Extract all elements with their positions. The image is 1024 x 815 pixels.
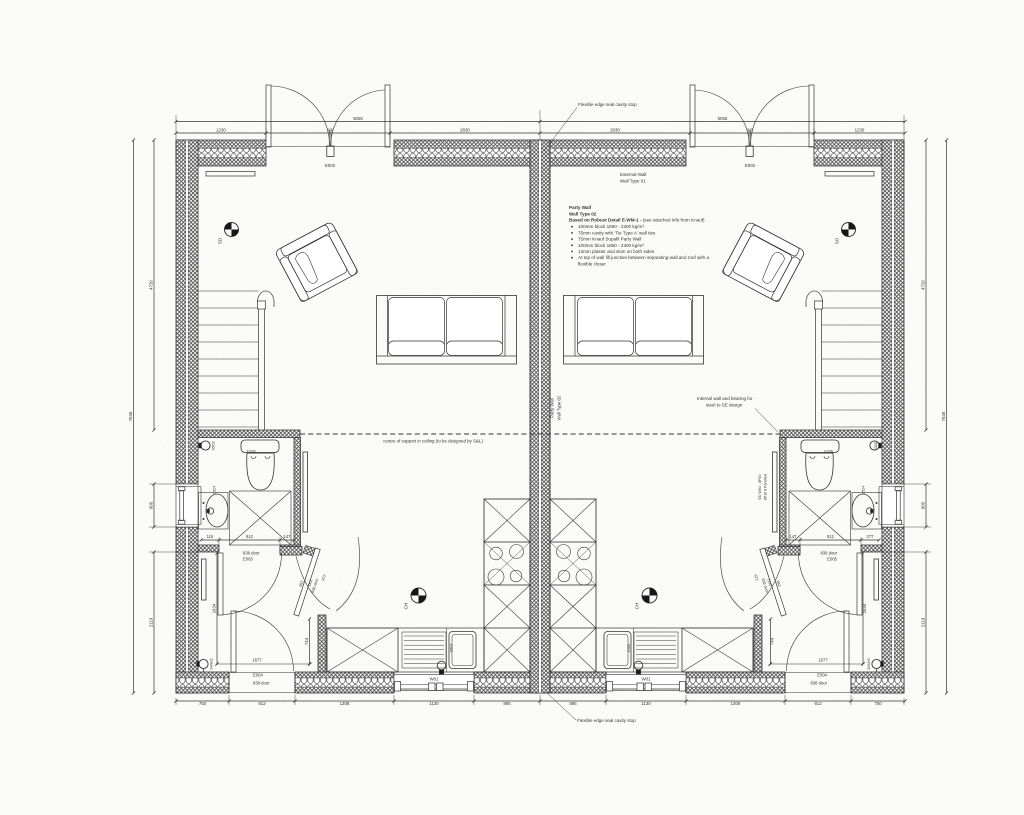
svg-text:W01: W01 bbox=[641, 677, 651, 682]
svg-text:2830: 2830 bbox=[610, 127, 620, 132]
svg-text:1230: 1230 bbox=[216, 127, 226, 132]
svg-text:SD: SD bbox=[835, 237, 840, 244]
svg-text:744: 744 bbox=[304, 637, 309, 645]
svg-text:13mm plaster and skim on both: 13mm plaster and skim on both sides bbox=[578, 249, 655, 254]
svg-text:277: 277 bbox=[867, 534, 875, 539]
svg-text:F336: F336 bbox=[824, 450, 833, 454]
svg-text:912: 912 bbox=[814, 701, 822, 706]
svg-text:4720: 4720 bbox=[920, 280, 925, 290]
svg-text:147: 147 bbox=[790, 534, 798, 539]
svg-text:838 door: 838 door bbox=[253, 681, 270, 686]
svg-text:centre of support in ceiling (: centre of support in ceiling (to be desi… bbox=[383, 439, 483, 444]
svg-text:1130: 1130 bbox=[429, 701, 439, 706]
svg-text:147: 147 bbox=[284, 534, 292, 539]
svg-text:895: 895 bbox=[503, 701, 511, 706]
svg-text:steel to SE design: steel to SE design bbox=[706, 403, 743, 408]
svg-text:1634: 1634 bbox=[211, 603, 216, 613]
svg-text:750: 750 bbox=[199, 701, 207, 706]
svg-text:975: 975 bbox=[327, 128, 333, 132]
svg-text:5055: 5055 bbox=[718, 116, 728, 121]
svg-text:1524: 1524 bbox=[213, 486, 217, 494]
svg-text:Flexible edge seal cavity stop: Flexible edge seal cavity stop bbox=[577, 718, 636, 723]
svg-text:600: 600 bbox=[920, 501, 925, 509]
svg-text:75mm cavity with 'Tie Type A': 75mm cavity with 'Tie Type A' wall ties bbox=[578, 230, 656, 235]
svg-text:ED W04 - 8P10: ED W04 - 8P10 bbox=[758, 475, 762, 500]
svg-text:1308: 1308 bbox=[731, 701, 741, 706]
svg-text:1130: 1130 bbox=[641, 701, 651, 706]
svg-text:600: 600 bbox=[148, 501, 153, 509]
svg-text:975: 975 bbox=[747, 128, 753, 132]
svg-text:4720: 4720 bbox=[148, 280, 153, 290]
svg-text:838 door: 838 door bbox=[820, 551, 837, 556]
svg-text:E004: E004 bbox=[817, 673, 827, 678]
svg-text:2119: 2119 bbox=[148, 617, 153, 627]
svg-text:5055: 5055 bbox=[353, 116, 363, 121]
svg-text:Party Wall: Party Wall bbox=[550, 398, 555, 417]
svg-text:7635: 7635 bbox=[941, 411, 946, 421]
svg-text:75mm Knauf Supafil Party Wall: 75mm Knauf Supafil Party Wall bbox=[578, 237, 641, 242]
svg-text:CH: CH bbox=[404, 603, 409, 610]
svg-text:Internal wall and bearing for: Internal wall and bearing for bbox=[697, 396, 753, 401]
svg-text:S503: S503 bbox=[212, 442, 216, 451]
svg-text:E004: E004 bbox=[253, 673, 263, 678]
svg-text:SV902: SV902 bbox=[210, 658, 214, 669]
svg-text:1230: 1230 bbox=[855, 127, 865, 132]
svg-text:Party Wall: Party Wall bbox=[569, 205, 591, 210]
svg-text:912: 912 bbox=[246, 534, 254, 539]
svg-text:W01: W01 bbox=[429, 677, 439, 682]
svg-text:Wall Type 02: Wall Type 02 bbox=[557, 395, 562, 420]
svg-text:895: 895 bbox=[569, 701, 577, 706]
svg-text:E005: E005 bbox=[827, 557, 837, 562]
svg-text:912: 912 bbox=[827, 534, 835, 539]
svg-text:flexible closer: flexible closer bbox=[578, 261, 606, 266]
svg-text:Flexible edge seal cavity stop: Flexible edge seal cavity stop bbox=[578, 102, 637, 107]
svg-text:External Wall: External Wall bbox=[620, 172, 646, 177]
svg-text:Wall Type 01: Wall Type 01 bbox=[620, 179, 646, 184]
svg-text:Wall Type 02: Wall Type 02 bbox=[569, 211, 597, 216]
svg-text:8P10 8 Panelled: 8P10 8 Panelled bbox=[764, 474, 768, 500]
svg-text:7635: 7635 bbox=[128, 411, 133, 421]
svg-text:SV902: SV902 bbox=[867, 658, 871, 669]
svg-text:S503: S503 bbox=[874, 442, 878, 451]
svg-text:E002: E002 bbox=[745, 163, 756, 168]
svg-text:S504: S504 bbox=[627, 644, 631, 653]
svg-text:744: 744 bbox=[769, 637, 774, 645]
svg-text:750: 750 bbox=[874, 701, 882, 706]
svg-text:E005: E005 bbox=[243, 557, 253, 562]
svg-text:1677: 1677 bbox=[252, 658, 262, 663]
svg-text:115: 115 bbox=[207, 534, 214, 539]
svg-text:2119: 2119 bbox=[920, 617, 925, 627]
svg-text:1677: 1677 bbox=[818, 658, 828, 663]
svg-text:838 door: 838 door bbox=[810, 681, 827, 686]
svg-text:1308: 1308 bbox=[340, 701, 350, 706]
svg-text:912: 912 bbox=[258, 701, 266, 706]
svg-text:E002: E002 bbox=[325, 163, 336, 168]
svg-text:Based on Robust Detail E-WM-1: Based on Robust Detail E-WM-1 - (see att… bbox=[569, 218, 705, 223]
svg-text:At top of wall fill junction b: At top of wall fill junction between sep… bbox=[578, 255, 709, 260]
svg-text:SD: SD bbox=[218, 237, 223, 244]
svg-text:2830: 2830 bbox=[460, 127, 470, 132]
svg-text:100mm block 1850 - 2300 kg/m³: 100mm block 1850 - 2300 kg/m³ bbox=[578, 243, 644, 248]
svg-text:S504: S504 bbox=[450, 644, 454, 653]
svg-text:100mm block 1850 - 2300 kg/m³: 100mm block 1850 - 2300 kg/m³ bbox=[578, 224, 644, 229]
svg-text:838 door: 838 door bbox=[243, 551, 260, 556]
svg-text:CH: CH bbox=[635, 603, 640, 610]
svg-text:1634: 1634 bbox=[862, 603, 867, 613]
svg-text:1524: 1524 bbox=[862, 486, 866, 494]
svg-text:F336: F336 bbox=[247, 450, 256, 454]
